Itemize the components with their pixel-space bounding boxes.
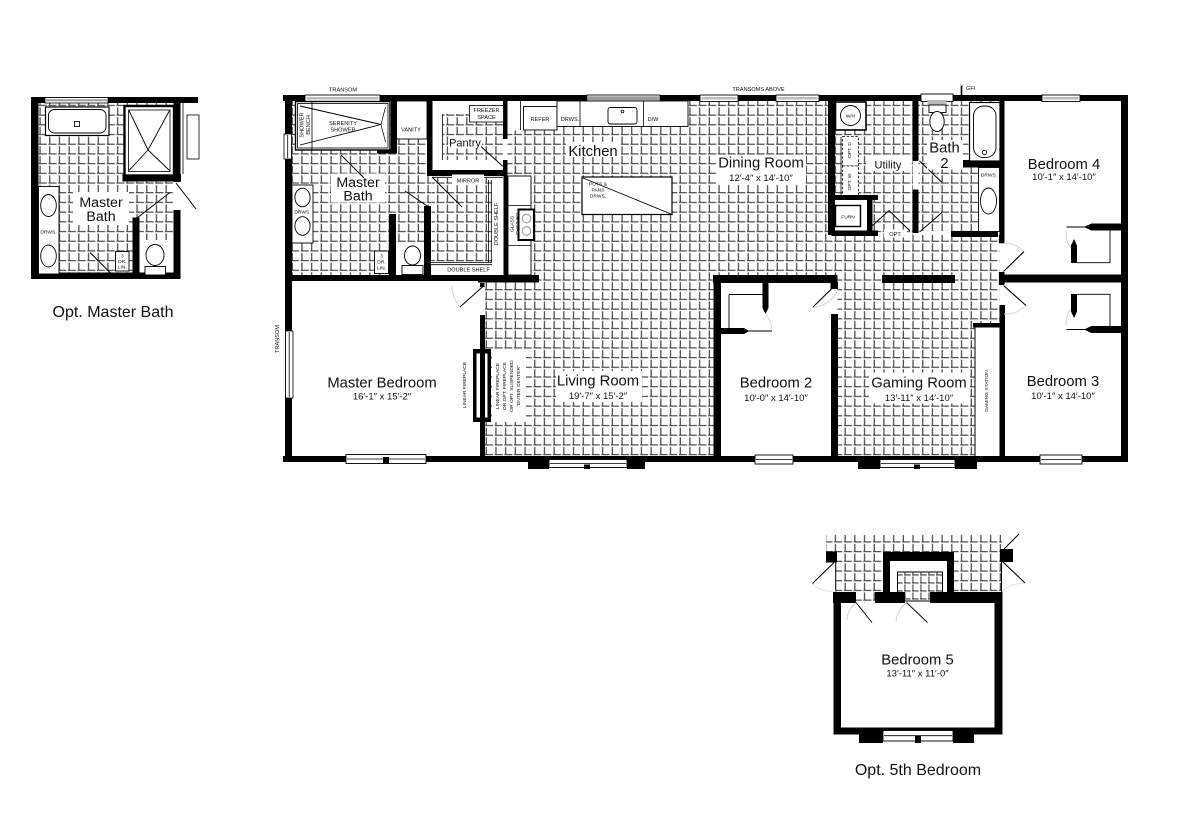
svg-text:OPT.: OPT. bbox=[889, 232, 902, 238]
svg-text:DRWS.: DRWS. bbox=[561, 117, 580, 123]
svg-text:VANITY: VANITY bbox=[401, 128, 421, 134]
svg-text:10′-0″ x 14′-10″: 10′-0″ x 14′-10″ bbox=[744, 393, 808, 404]
svg-text:MIRROR: MIRROR bbox=[457, 179, 480, 185]
svg-text:DRWS.: DRWS. bbox=[981, 173, 997, 179]
svg-text:12′-4″ x 14′-10″: 12′-4″ x 14′-10″ bbox=[729, 173, 793, 184]
svg-text:OPT. W: OPT. W bbox=[847, 173, 853, 190]
svg-text:Bedroom 5: Bedroom 5 bbox=[881, 653, 953, 669]
svg-text:TRANSOMS ABOVE: TRANSOMS ABOVE bbox=[732, 87, 784, 93]
svg-text:GLASS: GLASS bbox=[510, 215, 516, 232]
svg-text:FREEZER: FREEZER bbox=[473, 108, 499, 114]
svg-text:SHOWER: SHOWER bbox=[300, 112, 306, 137]
svg-text:SHOWER: SHOWER bbox=[330, 128, 355, 134]
svg-text:OR OPT. SUSPENDED: OR OPT. SUSPENDED bbox=[509, 360, 515, 412]
svg-text:SERENITY: SERENITY bbox=[329, 121, 357, 127]
svg-text:Dining Room: Dining Room bbox=[718, 156, 804, 172]
svg-text:3: 3 bbox=[121, 254, 124, 260]
svg-text:PANS: PANS bbox=[592, 188, 606, 194]
svg-text:Bath: Bath bbox=[929, 141, 959, 157]
svg-text:DRWS.: DRWS. bbox=[40, 230, 56, 236]
svg-text:DR.: DR. bbox=[377, 260, 385, 266]
svg-text:W/H: W/H bbox=[846, 114, 856, 120]
svg-text:GFI: GFI bbox=[966, 86, 976, 92]
svg-text:Bedroom 2: Bedroom 2 bbox=[740, 376, 812, 392]
svg-text:“ENTER CENTER”: “ENTER CENTER” bbox=[516, 365, 522, 407]
svg-text:OR OPT. FIREPLACE: OR OPT. FIREPLACE bbox=[502, 361, 508, 410]
svg-text:Opt. 5th Bedroom: Opt. 5th Bedroom bbox=[855, 762, 981, 779]
svg-text:Bedroom 3: Bedroom 3 bbox=[1027, 374, 1099, 390]
svg-text:Master Bedroom: Master Bedroom bbox=[327, 376, 436, 392]
svg-text:DRWS.: DRWS. bbox=[294, 210, 310, 216]
svg-text:BENCH: BENCH bbox=[306, 115, 312, 135]
svg-text:Bath: Bath bbox=[343, 189, 372, 205]
svg-text:LINEAR FIREPLACE: LINEAR FIREPLACE bbox=[462, 361, 468, 408]
svg-text:16′-1″ x 15′-2″: 16′-1″ x 15′-2″ bbox=[353, 392, 412, 403]
svg-text:LIN.: LIN. bbox=[118, 265, 127, 271]
svg-text:10′-1″ x 14′-10″: 10′-1″ x 14′-10″ bbox=[1032, 172, 1096, 183]
svg-text:3: 3 bbox=[380, 254, 383, 260]
svg-text:10′-1″ x 14′-10″: 10′-1″ x 14′-10″ bbox=[1031, 391, 1095, 402]
svg-text:Bedroom 4: Bedroom 4 bbox=[1028, 157, 1100, 173]
svg-text:Pantry: Pantry bbox=[449, 138, 481, 150]
svg-text:FURN: FURN bbox=[841, 215, 855, 221]
svg-text:POTS &: POTS & bbox=[589, 182, 608, 188]
svg-text:DOUBLE SHELF: DOUBLE SHELF bbox=[447, 268, 490, 274]
svg-text:DRWS.: DRWS. bbox=[590, 194, 606, 200]
svg-text:REFER: REFER bbox=[531, 117, 550, 123]
svg-text:13′-11″ x 11′-0″: 13′-11″ x 11′-0″ bbox=[886, 669, 949, 680]
svg-text:Living Room: Living Room bbox=[557, 374, 639, 390]
svg-text:DOUBLE SHELF: DOUBLE SHELF bbox=[494, 202, 500, 245]
svg-text:19′-7″ x 15′-2″: 19′-7″ x 15′-2″ bbox=[569, 391, 628, 402]
svg-text:13′-11″ x 14′-10″: 13′-11″ x 14′-10″ bbox=[885, 393, 954, 404]
svg-text:LIN.: LIN. bbox=[377, 266, 386, 272]
svg-text:2: 2 bbox=[940, 156, 948, 172]
svg-text:OPT. D: OPT. D bbox=[847, 142, 853, 158]
svg-text:Opt. Master Bath: Opt. Master Bath bbox=[53, 304, 174, 321]
svg-text:TRANSOM: TRANSOM bbox=[275, 325, 281, 353]
svg-text:LINEAR FIREPLACE: LINEAR FIREPLACE bbox=[495, 362, 501, 409]
svg-text:Bath: Bath bbox=[86, 209, 115, 225]
svg-text:D/W: D/W bbox=[648, 117, 660, 123]
svg-text:Utility: Utility bbox=[875, 160, 902, 172]
svg-text:TRANSOM: TRANSOM bbox=[329, 88, 357, 94]
svg-text:DR.: DR. bbox=[118, 259, 126, 265]
svg-text:Gaming Room: Gaming Room bbox=[871, 376, 966, 392]
svg-text:SPACE: SPACE bbox=[477, 115, 496, 121]
svg-text:Kitchen: Kitchen bbox=[568, 144, 617, 160]
svg-text:GAMING STATION: GAMING STATION bbox=[984, 370, 990, 412]
